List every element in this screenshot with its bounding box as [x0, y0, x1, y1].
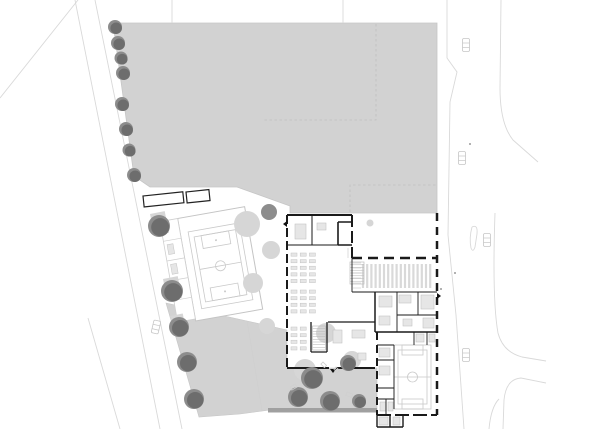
street-edge-line: [503, 378, 546, 429]
traffic-island: [470, 226, 477, 250]
desk: [291, 290, 297, 293]
car-body: [484, 234, 491, 247]
street-edge-line: [447, 0, 464, 429]
tree-crown: [110, 22, 121, 33]
desk: [300, 303, 306, 306]
fixture: [295, 224, 306, 239]
desk: [309, 266, 315, 269]
desk: [291, 334, 297, 337]
desk: [291, 327, 297, 330]
fixture: [388, 402, 393, 411]
fixture: [379, 296, 392, 307]
desk: [309, 297, 315, 300]
fixture: [352, 330, 365, 338]
desk: [291, 303, 297, 306]
desk: [300, 279, 306, 282]
fixture: [403, 319, 412, 326]
fixture: [380, 402, 386, 411]
tree: [261, 204, 277, 220]
desk: [291, 340, 297, 343]
street-edge-line: [88, 318, 120, 429]
fixture: [421, 295, 434, 309]
fixture: [429, 334, 435, 342]
tree-crown: [121, 124, 132, 135]
fixture: [399, 295, 411, 303]
desk: [291, 260, 297, 263]
tree-crown: [323, 394, 339, 410]
desk: [309, 310, 315, 313]
fixture: [423, 318, 434, 328]
tree-crown: [180, 355, 196, 371]
fixture: [317, 223, 326, 230]
tree-crown: [304, 370, 322, 388]
desk: [291, 310, 297, 313]
fixture: [379, 417, 388, 425]
desk: [291, 273, 297, 276]
parked-car: [151, 320, 161, 334]
tree-crown: [117, 54, 128, 65]
desk: [300, 334, 306, 337]
tree-crown: [354, 396, 365, 407]
car-body: [151, 320, 161, 334]
fixture: [379, 348, 390, 357]
desk: [300, 340, 306, 343]
desk: [300, 347, 306, 350]
desk: [309, 273, 315, 276]
tree-crown: [125, 146, 136, 157]
bollard-dot: [440, 288, 442, 290]
bollard-dot: [454, 272, 456, 274]
tree-canopy: [234, 211, 260, 237]
desk: [300, 260, 306, 263]
tree-crown: [113, 38, 124, 49]
site-plan-canvas: [0, 0, 600, 429]
tree-crown: [187, 392, 203, 408]
desk: [309, 253, 315, 256]
desk: [291, 347, 297, 350]
parking-shelters: [143, 190, 210, 207]
tree-canopy: [259, 318, 275, 334]
bollard-dots: [440, 143, 471, 290]
street-edge-line: [489, 399, 499, 429]
classroom-desks: [291, 253, 315, 350]
tree-crown: [151, 218, 169, 236]
parked-car: [484, 234, 491, 247]
desk: [300, 327, 306, 330]
parked-car: [463, 39, 470, 52]
door-marker: [283, 221, 287, 227]
tree-canopy: [262, 241, 280, 259]
tree-crown: [291, 390, 307, 406]
car-body: [463, 349, 470, 362]
tree-canopy: [243, 273, 263, 293]
bollard-dot: [469, 143, 471, 145]
fixture: [379, 366, 390, 375]
street-edge-line: [0, 0, 78, 98]
fixture: [358, 353, 366, 360]
tree-crown: [129, 170, 140, 181]
fixture: [333, 330, 342, 343]
tree-canopy: [367, 220, 374, 227]
desk: [309, 303, 315, 306]
fixture: [393, 417, 400, 425]
tree-crown: [343, 358, 356, 371]
desk: [309, 279, 315, 282]
parking-shelter: [186, 190, 210, 203]
desk: [300, 253, 306, 256]
desk: [291, 253, 297, 256]
wall: [338, 222, 352, 245]
door-marker: [437, 293, 441, 299]
parked-car: [459, 152, 466, 165]
desk: [291, 266, 297, 269]
desk: [300, 266, 306, 269]
small-sports-court: [394, 345, 431, 409]
desk: [300, 310, 306, 313]
desk: [300, 297, 306, 300]
multipurpose-hall-stripes: [353, 263, 430, 288]
parked-car: [463, 349, 470, 362]
desk: [309, 290, 315, 293]
fixture: [379, 316, 390, 325]
tree-crown: [117, 99, 128, 110]
street-edge-line: [500, 0, 538, 162]
sports-field: [113, 23, 437, 213]
car-body: [459, 152, 466, 165]
street-edge-line: [494, 213, 546, 361]
car-body: [463, 39, 470, 52]
tree-crown: [118, 68, 129, 79]
courtyard-retaining-band: [268, 408, 377, 413]
right-street: [447, 0, 546, 429]
desk: [291, 279, 297, 282]
bench: [321, 362, 327, 368]
desk: [300, 273, 306, 276]
parking-shelter: [143, 192, 184, 207]
fixture: [416, 334, 424, 342]
desk: [309, 260, 315, 263]
desk: [291, 297, 297, 300]
tree-crown: [164, 283, 182, 301]
tree-crown: [172, 320, 188, 336]
site-plan: [0, 0, 600, 429]
desk: [300, 290, 306, 293]
